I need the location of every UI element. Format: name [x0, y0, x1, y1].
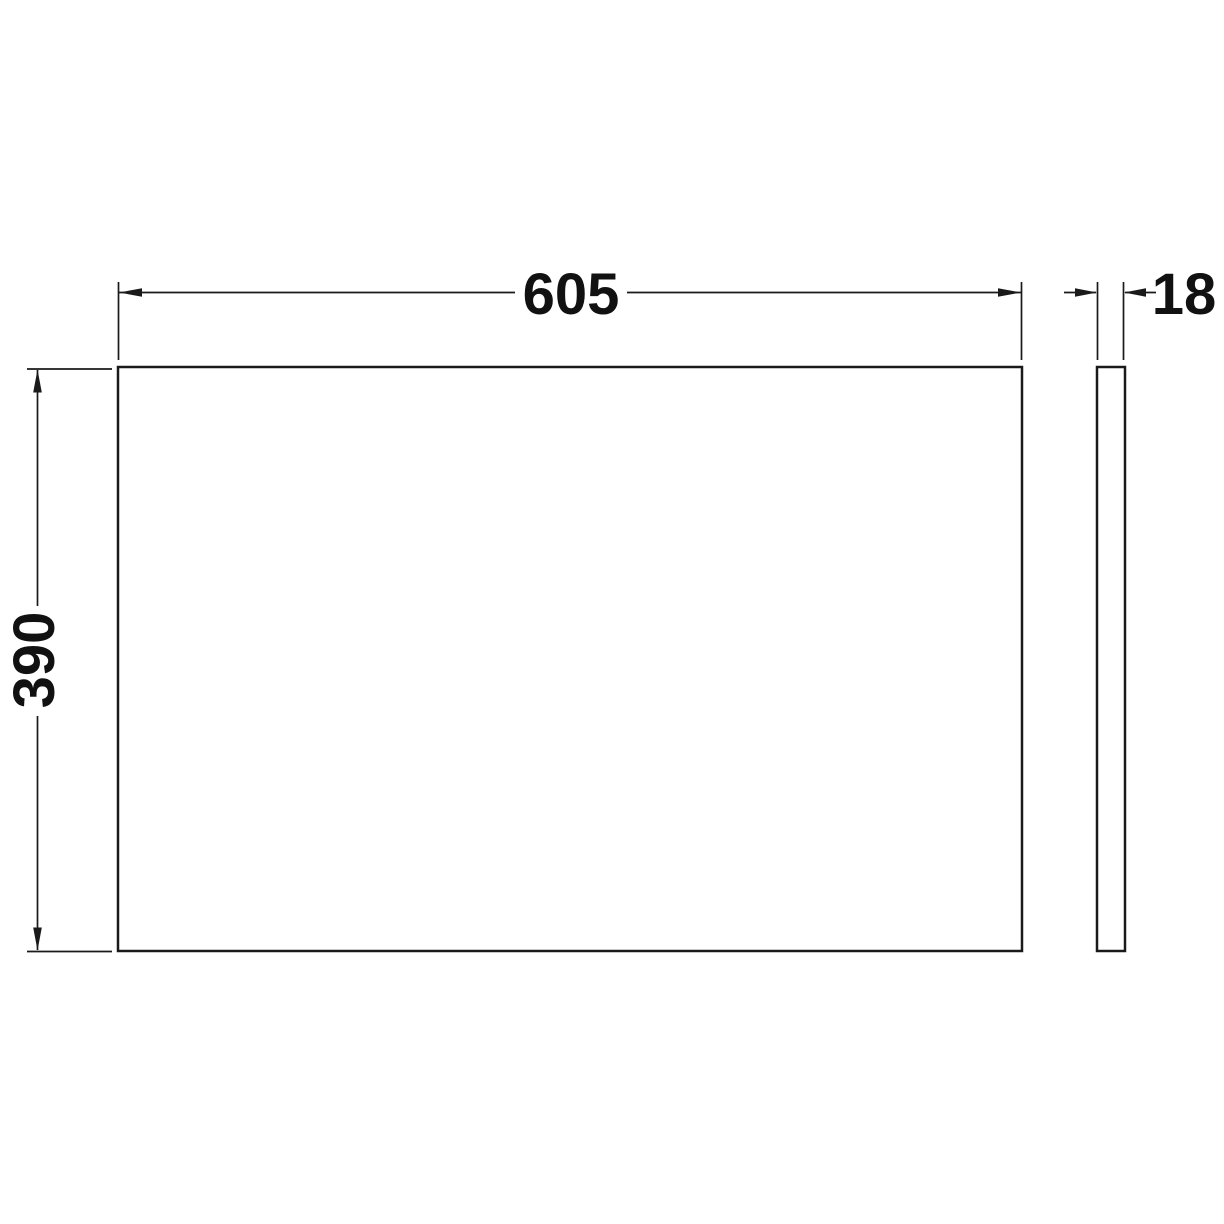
- side-panel-outline: [1097, 367, 1125, 951]
- technical-drawing: 605 390 18: [0, 0, 1224, 1224]
- width-arrowhead-right-icon: [998, 288, 1021, 297]
- thickness-dimension: 18: [1064, 262, 1216, 360]
- front-panel-outline: [118, 367, 1022, 951]
- thickness-arrowhead-left-icon: [1075, 288, 1097, 297]
- width-dimension: 605: [119, 262, 1022, 360]
- height-dimension-label: 390: [2, 612, 67, 709]
- thickness-arrowhead-right-icon: [1124, 288, 1146, 297]
- height-arrowhead-top-icon: [33, 370, 42, 393]
- height-arrowhead-bottom-icon: [33, 928, 42, 951]
- width-dimension-label: 605: [523, 262, 620, 327]
- drawing-canvas: 605 390 18: [0, 0, 1224, 1224]
- width-arrowhead-left-icon: [119, 288, 142, 297]
- thickness-dimension-label: 18: [1152, 262, 1217, 327]
- height-dimension: 390: [2, 369, 112, 952]
